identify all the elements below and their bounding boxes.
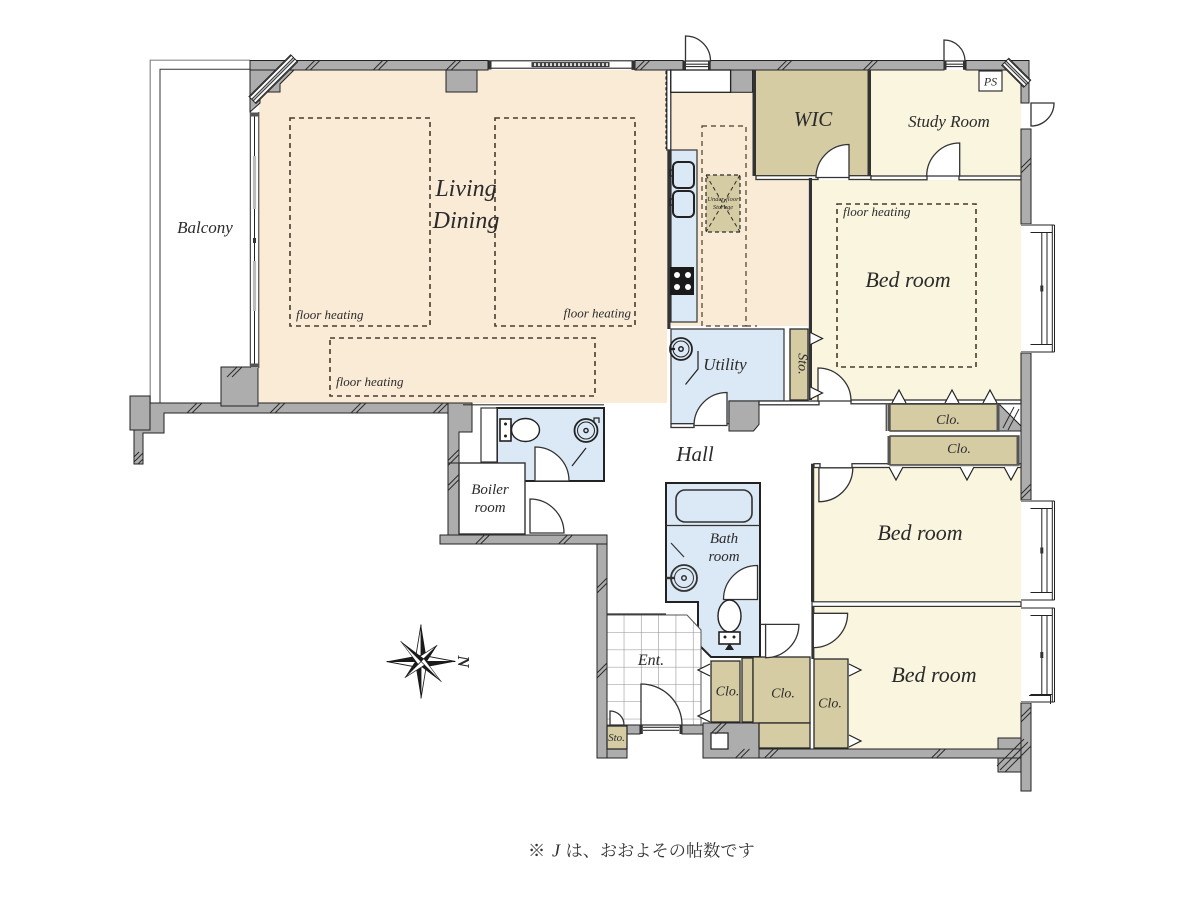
- svg-text:Bed room: Bed room: [865, 267, 950, 292]
- svg-text:Sto.: Sto.: [795, 353, 810, 374]
- svg-text:Hall: Hall: [675, 442, 714, 466]
- svg-text:Clo.: Clo.: [947, 442, 971, 457]
- svg-text:Storage: Storage: [713, 204, 733, 211]
- svg-text:Sto.: Sto.: [608, 732, 625, 744]
- svg-text:Clo.: Clo.: [716, 685, 740, 700]
- svg-text:Clo.: Clo.: [936, 413, 960, 428]
- svg-text:Boiler: Boiler: [471, 482, 509, 498]
- svg-text:Living: Living: [434, 176, 496, 202]
- svg-text:Under-floor: Under-floor: [707, 196, 739, 203]
- svg-text:Ent.: Ent.: [637, 652, 664, 669]
- svg-text:PS: PS: [983, 75, 997, 89]
- svg-text:Study Room: Study Room: [908, 112, 990, 131]
- svg-text:floor heating: floor heating: [296, 307, 364, 322]
- svg-text:N: N: [454, 654, 473, 668]
- svg-text:Bath: Bath: [710, 531, 738, 547]
- svg-text:floor heating: floor heating: [563, 306, 631, 321]
- svg-text:room: room: [708, 549, 739, 565]
- svg-text:floor heating: floor heating: [336, 374, 404, 389]
- svg-text:Balcony: Balcony: [177, 218, 233, 237]
- svg-text:Utility: Utility: [703, 355, 747, 374]
- svg-text:WIC: WIC: [794, 107, 833, 131]
- svg-text:Bed room: Bed room: [891, 662, 976, 687]
- svg-text:Dining: Dining: [432, 208, 500, 234]
- svg-text:Clo.: Clo.: [818, 697, 842, 712]
- svg-text:J: J: [552, 841, 561, 861]
- svg-text:Clo.: Clo.: [771, 687, 795, 702]
- svg-text:floor heating: floor heating: [843, 204, 911, 219]
- svg-text:Bed room: Bed room: [877, 520, 962, 545]
- svg-text:room: room: [474, 500, 505, 516]
